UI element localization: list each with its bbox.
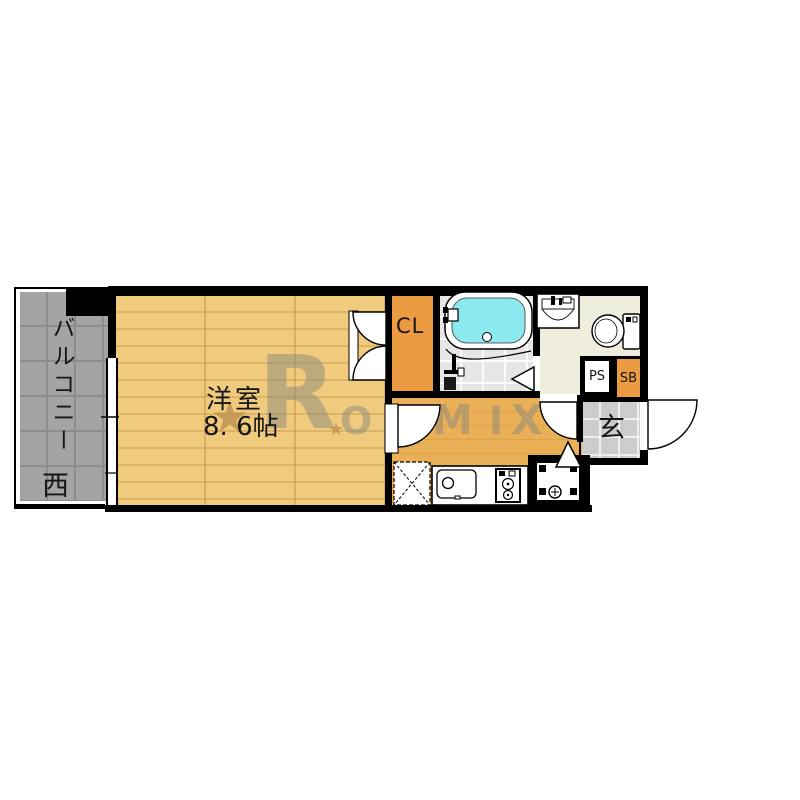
watermark-letter-m: M [432,400,473,441]
watermark-star-small: ★ [328,421,344,439]
pipe-space-box: PS [580,356,614,397]
wall-room-right-lower [385,452,392,505]
balcony-direction-label: 西 [42,464,69,503]
watermark-letter-o2: O [389,402,421,440]
kitchen-area [392,460,533,505]
watermark-letter-i: I [489,402,503,440]
wall-top [108,286,648,296]
wall-closet-bath-bottom [385,391,540,398]
western-room-size: 8. 6帖 [203,406,279,443]
wall-closet-right [433,296,440,391]
wall-bottom [105,505,592,512]
wall-bath-washroom [533,296,540,356]
floor-plan-image: R O O M I X ★ ★ PS SB [0,0,800,800]
laundry-room-floor [537,463,579,500]
watermark-letter-x: X [511,400,543,441]
wall-balcony-pillar [66,287,116,316]
entrance-label: 玄 [598,406,625,445]
wall-right-upper [640,286,648,400]
wall-right-lower [640,452,648,465]
closet-label: CL [396,314,424,338]
balcony-window [106,358,118,505]
wall-genkan-left [577,395,583,442]
watermark-letter-o1: O [340,402,372,440]
pipe-space-label: PS [589,369,605,384]
closet-area [392,296,433,391]
balcony-label: バルコニー [44,316,78,456]
shoe-box: SB [614,356,640,397]
shoe-box-label: SB [620,371,637,386]
bathroom [440,296,533,391]
wall-room-right-upper [385,296,392,405]
wall-balcony-bottom [14,504,105,509]
entrance-door-swing [648,400,697,449]
